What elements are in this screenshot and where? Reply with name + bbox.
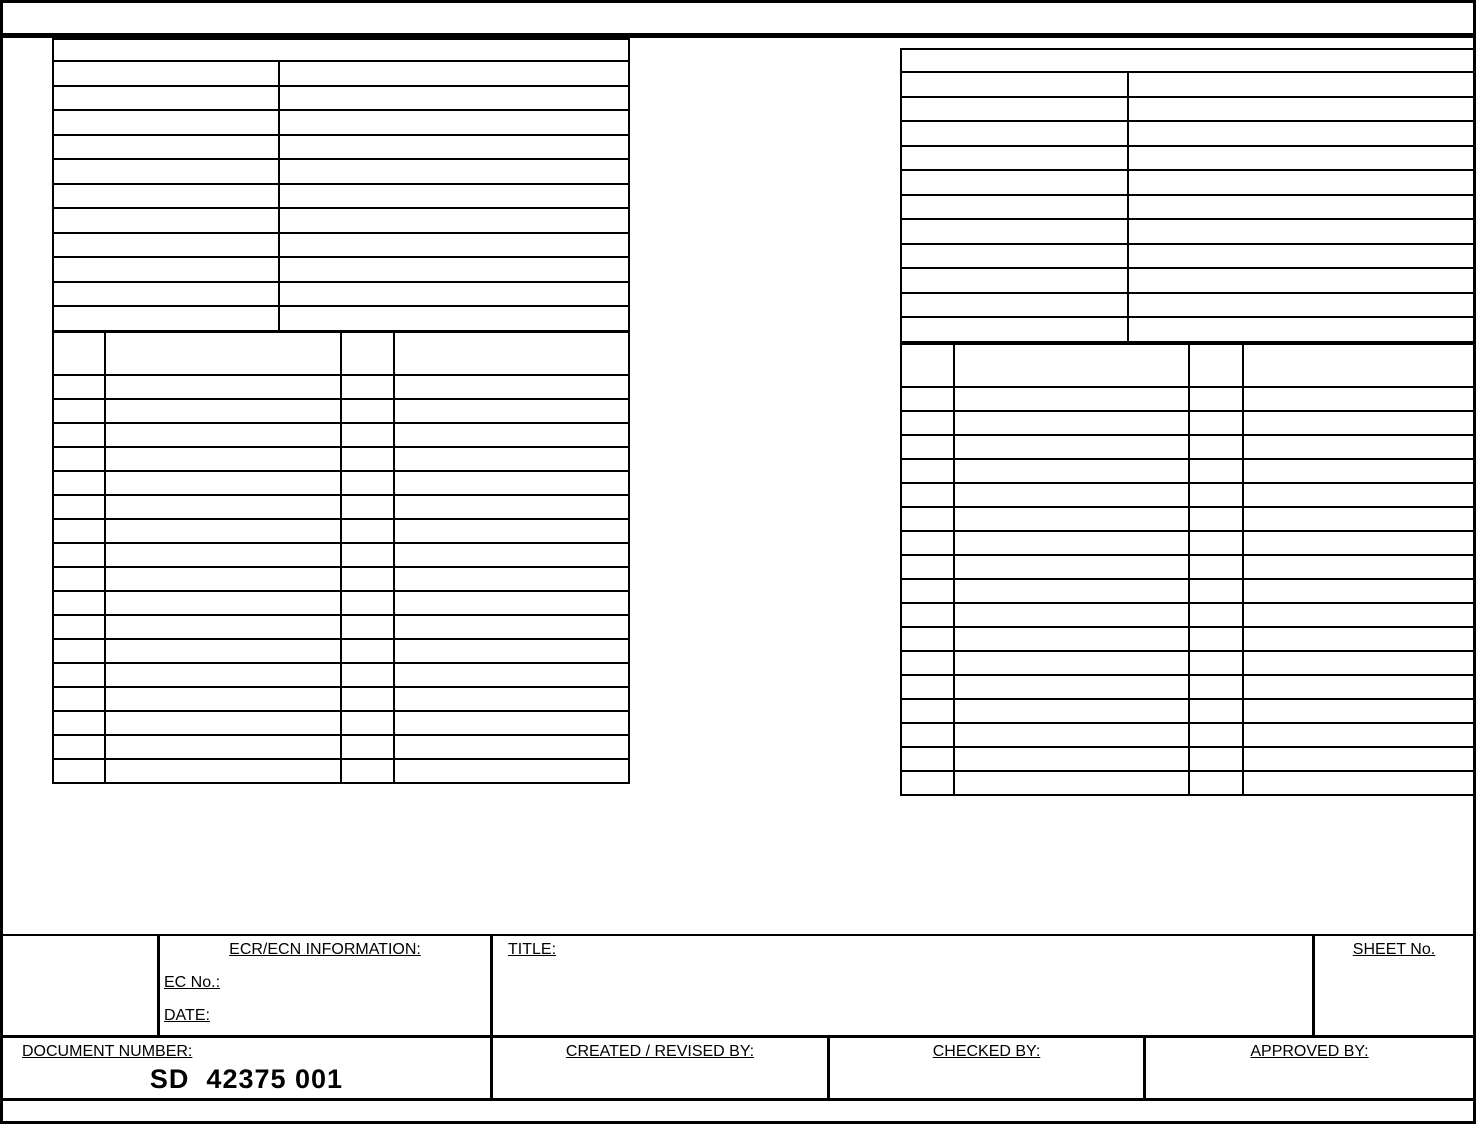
table-cell: [53, 86, 279, 111]
table-cell: [53, 447, 105, 471]
table-cell: [53, 233, 279, 258]
table-cell: [954, 723, 1189, 747]
table-cell: [1189, 555, 1243, 579]
table-row: [53, 208, 629, 233]
table-cell: [1243, 531, 1474, 555]
table-cell: [1128, 268, 1474, 293]
table-cell: [341, 687, 394, 711]
table-row: [53, 567, 629, 591]
table-cell: [53, 423, 105, 447]
table-cell: [954, 771, 1189, 795]
table-cell: [53, 567, 105, 591]
table-cell: [53, 735, 105, 759]
table-row: [53, 759, 629, 783]
table-cell: [1243, 411, 1474, 435]
table-cell: [341, 519, 394, 543]
table-cell: [1189, 699, 1243, 723]
table-cell: [53, 591, 105, 615]
document-page: ECR/ECN INFORMATION: EC No.: DATE: TITLE…: [0, 0, 1476, 1124]
created-revised-by-cell: CREATED / REVISED BY:: [493, 1038, 830, 1098]
table-row: [901, 146, 1474, 171]
table-cell: [53, 615, 105, 639]
table-cell: [901, 317, 1128, 342]
table-cell: [1189, 435, 1243, 459]
table-cell: [901, 747, 954, 771]
table-cell: [53, 399, 105, 423]
checked-by-label: CHECKED BY:: [830, 1042, 1143, 1061]
table-cell: [105, 663, 341, 687]
table-cell: [954, 411, 1189, 435]
sheet-no-label: SHEET No.: [1315, 940, 1473, 959]
table-cell: [279, 233, 629, 258]
table-row: [53, 687, 629, 711]
table-cell: [1243, 723, 1474, 747]
table-cell: [901, 603, 954, 627]
table-row: [53, 543, 629, 567]
table-cell: [1243, 435, 1474, 459]
table-cell: [1243, 603, 1474, 627]
table-cell: [901, 387, 954, 411]
table-cell: [394, 332, 629, 375]
table-cell: [1189, 627, 1243, 651]
table-cell: [1189, 579, 1243, 603]
table-row: [901, 97, 1474, 122]
table-cell: [954, 747, 1189, 771]
table-cell: [1189, 675, 1243, 699]
table-cell: [1243, 675, 1474, 699]
table-cell: [341, 423, 394, 447]
table-row: [53, 663, 629, 687]
table-cell: [901, 459, 954, 483]
table-cell: [954, 627, 1189, 651]
table-cell: [901, 244, 1128, 269]
table-cell: [394, 591, 629, 615]
table-cell: [279, 208, 629, 233]
ecr-ecn-information-label: ECR/ECN INFORMATION:: [160, 940, 490, 959]
table-row: [901, 483, 1474, 507]
table-row: [901, 317, 1474, 342]
table-cell: [901, 195, 1128, 220]
table-cell: [279, 306, 629, 331]
table-cell: [954, 387, 1189, 411]
table-cell: [105, 495, 341, 519]
table-cell: [105, 423, 341, 447]
table-cell: [53, 110, 279, 135]
table-cell: [954, 651, 1189, 675]
table-cell: [279, 135, 629, 160]
table-cell: [954, 507, 1189, 531]
table-cell: [341, 495, 394, 519]
table-row: [53, 591, 629, 615]
table-row: [901, 72, 1474, 97]
table-cell: [1128, 219, 1474, 244]
table-row: [53, 332, 629, 375]
table-cell: [341, 711, 394, 735]
table-row: [901, 603, 1474, 627]
table-cell: [1243, 771, 1474, 795]
table-row: [53, 282, 629, 307]
table-row: [53, 711, 629, 735]
table-cell: [105, 759, 341, 783]
table-row: [53, 110, 629, 135]
table-cell: [901, 170, 1128, 195]
table-cell: [105, 447, 341, 471]
table-row: [53, 306, 629, 331]
table-row: [901, 651, 1474, 675]
table-cell: [1189, 387, 1243, 411]
table-cell: [341, 332, 394, 375]
table-cell: [901, 72, 1128, 97]
table-row: [53, 615, 629, 639]
right-lower-table: [900, 343, 1475, 796]
table-cell: [105, 615, 341, 639]
table-row: [901, 723, 1474, 747]
table-cell: [105, 519, 341, 543]
table-row: [53, 159, 629, 184]
table-cell: [954, 675, 1189, 699]
table-cell: [341, 471, 394, 495]
table-row: [901, 195, 1474, 220]
table-cell: [901, 651, 954, 675]
table-row: [53, 519, 629, 543]
table-cell: [394, 615, 629, 639]
table-cell: [1128, 293, 1474, 318]
table-cell: [105, 711, 341, 735]
table-cell: [954, 344, 1189, 387]
table-cell: [901, 435, 954, 459]
table-cell: [1189, 531, 1243, 555]
table-row: [901, 531, 1474, 555]
table-cell: [53, 184, 279, 209]
table-cell: [1128, 97, 1474, 122]
footer-row-3: [3, 1098, 1473, 1121]
approved-by-label: APPROVED BY:: [1146, 1042, 1473, 1061]
table-cell: [341, 663, 394, 687]
table-cell: [53, 257, 279, 282]
table-cell: [1243, 483, 1474, 507]
table-row: [53, 639, 629, 663]
table-cell: [394, 519, 629, 543]
left-upper-table: [52, 38, 630, 332]
table-cell: [1243, 747, 1474, 771]
table-cell: [1189, 603, 1243, 627]
table-cell: [279, 86, 629, 111]
table-cell: [341, 615, 394, 639]
table-cell: [1243, 579, 1474, 603]
right-upper-table: [900, 48, 1475, 343]
table-cell: [279, 257, 629, 282]
table-cell: [1128, 72, 1474, 97]
table-cell: [53, 759, 105, 783]
table-cell: [105, 687, 341, 711]
table-row: [901, 555, 1474, 579]
table-cell: [1243, 627, 1474, 651]
table-cell: [901, 771, 954, 795]
table-cell: [1189, 459, 1243, 483]
table-cell: [394, 471, 629, 495]
table-row: [901, 675, 1474, 699]
table-cell: [394, 423, 629, 447]
table-cell: [341, 375, 394, 399]
footer-empty-cell: [3, 936, 160, 1035]
table-cell: [394, 567, 629, 591]
table-cell: [341, 567, 394, 591]
table-cell: [53, 159, 279, 184]
table-cell: [341, 639, 394, 663]
table-cell: [1189, 723, 1243, 747]
table-cell: [1189, 771, 1243, 795]
table-cell: [53, 282, 279, 307]
table-cell: [901, 483, 954, 507]
table-cell: [341, 399, 394, 423]
table-cell: [394, 375, 629, 399]
table-cell: [341, 735, 394, 759]
table-row: [901, 699, 1474, 723]
date-label: DATE:: [160, 1006, 490, 1025]
table-row: [53, 495, 629, 519]
table-cell: [901, 344, 954, 387]
table-cell: [394, 687, 629, 711]
table-cell: [53, 639, 105, 663]
table-cell: [901, 121, 1128, 146]
table-cell: [1189, 507, 1243, 531]
table-cell: [394, 447, 629, 471]
table-cell: [901, 555, 954, 579]
table-cell: [954, 603, 1189, 627]
ec-no-label: EC No.:: [160, 973, 490, 992]
footer-row-2: DOCUMENT NUMBER: SD 42375 001 CREATED / …: [3, 1035, 1473, 1098]
table-cell: [105, 735, 341, 759]
table-cell: [394, 759, 629, 783]
table-cell: [954, 531, 1189, 555]
table-row: [53, 61, 629, 86]
table-cell: [53, 519, 105, 543]
checked-by-cell: CHECKED BY:: [830, 1038, 1146, 1098]
table-cell: [901, 97, 1128, 122]
table-cell: [105, 567, 341, 591]
table-cell: [901, 411, 954, 435]
table-cell: [1189, 651, 1243, 675]
table-row: [901, 170, 1474, 195]
table-cell: [394, 735, 629, 759]
table-cell: [1243, 555, 1474, 579]
table-row: [53, 39, 629, 61]
table-cell: [1189, 747, 1243, 771]
table-cell: [901, 675, 954, 699]
table-cell: [901, 579, 954, 603]
table-cell: [394, 639, 629, 663]
table-row: [53, 233, 629, 258]
table-cell: [279, 110, 629, 135]
table-row: [53, 471, 629, 495]
table-cell: [105, 375, 341, 399]
title-label: TITLE:: [493, 940, 1312, 959]
table-row: [901, 579, 1474, 603]
table-cell: [1243, 344, 1474, 387]
table-cell: [53, 208, 279, 233]
table-cell: [954, 483, 1189, 507]
table-cell: [1128, 195, 1474, 220]
table-cell: [53, 332, 105, 375]
table-cell: [105, 639, 341, 663]
table-cell: [954, 579, 1189, 603]
table-cell: [53, 711, 105, 735]
table-cell: [53, 375, 105, 399]
table-cell: [954, 555, 1189, 579]
table-cell: [53, 39, 629, 61]
table-cell: [279, 159, 629, 184]
table-row: [53, 399, 629, 423]
table-row: [53, 135, 629, 160]
table-cell: [1128, 317, 1474, 342]
table-row: [901, 435, 1474, 459]
table-row: [901, 219, 1474, 244]
table-cell: [1243, 699, 1474, 723]
table-row: [53, 375, 629, 399]
table-cell: [394, 663, 629, 687]
table-row: [901, 293, 1474, 318]
table-row: [53, 86, 629, 111]
table-row: [901, 627, 1474, 651]
table-row: [901, 244, 1474, 269]
approved-by-cell: APPROVED BY:: [1146, 1038, 1473, 1098]
table-cell: [1128, 244, 1474, 269]
table-row: [901, 771, 1474, 795]
table-cell: [53, 543, 105, 567]
table-cell: [1128, 121, 1474, 146]
table-cell: [341, 447, 394, 471]
table-row: [901, 344, 1474, 387]
table-row: [901, 459, 1474, 483]
table-cell: [53, 61, 279, 86]
table-cell: [1128, 146, 1474, 171]
table-cell: [954, 459, 1189, 483]
title-cell: TITLE:: [493, 936, 1315, 1035]
table-cell: [901, 146, 1128, 171]
table-cell: [901, 219, 1128, 244]
table-row: [53, 184, 629, 209]
table-cell: [1189, 483, 1243, 507]
table-row: [53, 447, 629, 471]
table-cell: [901, 49, 1474, 72]
table-cell: [901, 627, 954, 651]
table-row: [901, 387, 1474, 411]
document-number-label: DOCUMENT NUMBER:: [3, 1042, 490, 1061]
document-number-cell: DOCUMENT NUMBER: SD 42375 001: [3, 1038, 493, 1098]
table-cell: [394, 399, 629, 423]
table-cell: [901, 293, 1128, 318]
table-cell: [901, 699, 954, 723]
table-row: [901, 747, 1474, 771]
table-row: [53, 257, 629, 282]
table-cell: [394, 543, 629, 567]
table-cell: [105, 543, 341, 567]
table-cell: [105, 332, 341, 375]
table-row: [901, 49, 1474, 72]
table-cell: [901, 507, 954, 531]
table-row: [901, 268, 1474, 293]
table-cell: [341, 543, 394, 567]
document-number-value: SD 42375 001: [3, 1064, 490, 1095]
table-cell: [1189, 411, 1243, 435]
table-cell: [954, 435, 1189, 459]
table-cell: [53, 306, 279, 331]
table-row: [53, 423, 629, 447]
ecr-ecn-cell: ECR/ECN INFORMATION: EC No.: DATE:: [160, 936, 493, 1035]
table-cell: [901, 268, 1128, 293]
sheet-no-cell: SHEET No.: [1315, 936, 1473, 1035]
table-cell: [394, 495, 629, 519]
footer-row-1: ECR/ECN INFORMATION: EC No.: DATE: TITLE…: [3, 934, 1473, 1035]
table-cell: [901, 723, 954, 747]
left-lower-table: [52, 331, 630, 784]
table-cell: [1128, 170, 1474, 195]
table-row: [901, 411, 1474, 435]
table-cell: [1243, 387, 1474, 411]
table-cell: [279, 61, 629, 86]
table-cell: [105, 471, 341, 495]
table-cell: [341, 759, 394, 783]
table-row: [53, 735, 629, 759]
table-cell: [341, 591, 394, 615]
table-cell: [901, 531, 954, 555]
table-cell: [279, 184, 629, 209]
table-cell: [394, 711, 629, 735]
table-row: [901, 507, 1474, 531]
table-cell: [1243, 651, 1474, 675]
table-cell: [53, 663, 105, 687]
table-cell: [53, 687, 105, 711]
table-cell: [954, 699, 1189, 723]
table-cell: [279, 282, 629, 307]
table-cell: [1243, 507, 1474, 531]
table-row: [901, 121, 1474, 146]
table-cell: [1189, 344, 1243, 387]
table-cell: [53, 495, 105, 519]
table-cell: [1243, 459, 1474, 483]
created-revised-by-label: CREATED / REVISED BY:: [493, 1042, 827, 1061]
table-cell: [53, 135, 279, 160]
table-cell: [105, 591, 341, 615]
table-cell: [105, 399, 341, 423]
table-cell: [53, 471, 105, 495]
